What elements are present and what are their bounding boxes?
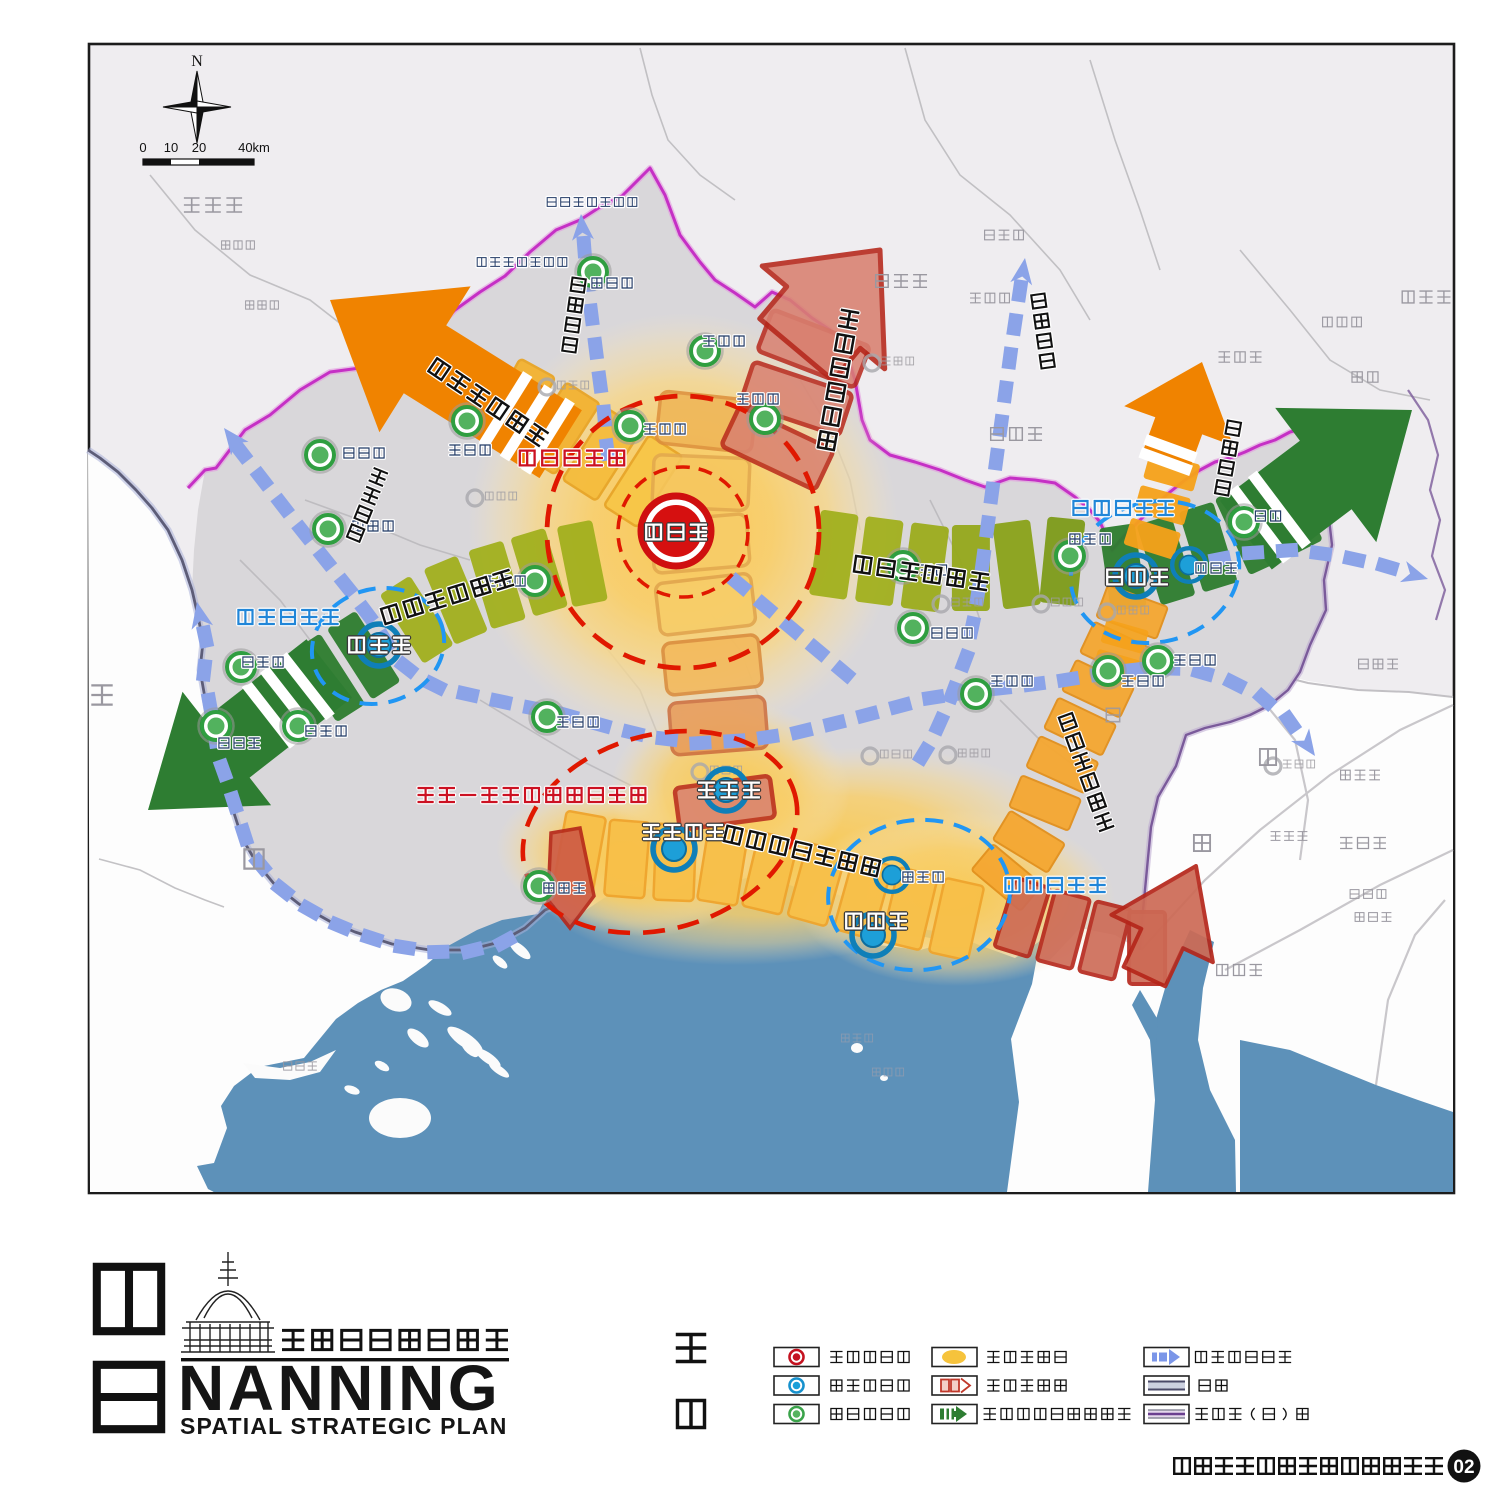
svg-text:10: 10 [164,140,178,155]
svg-text:40km: 40km [238,140,270,155]
svg-text:SPATIAL STRATEGIC PLAN: SPATIAL STRATEGIC PLAN [180,1413,508,1439]
svg-text:N: N [191,53,203,70]
svg-text:02: 02 [1453,1457,1474,1478]
svg-text:20: 20 [192,140,206,155]
svg-text:0: 0 [139,140,146,155]
